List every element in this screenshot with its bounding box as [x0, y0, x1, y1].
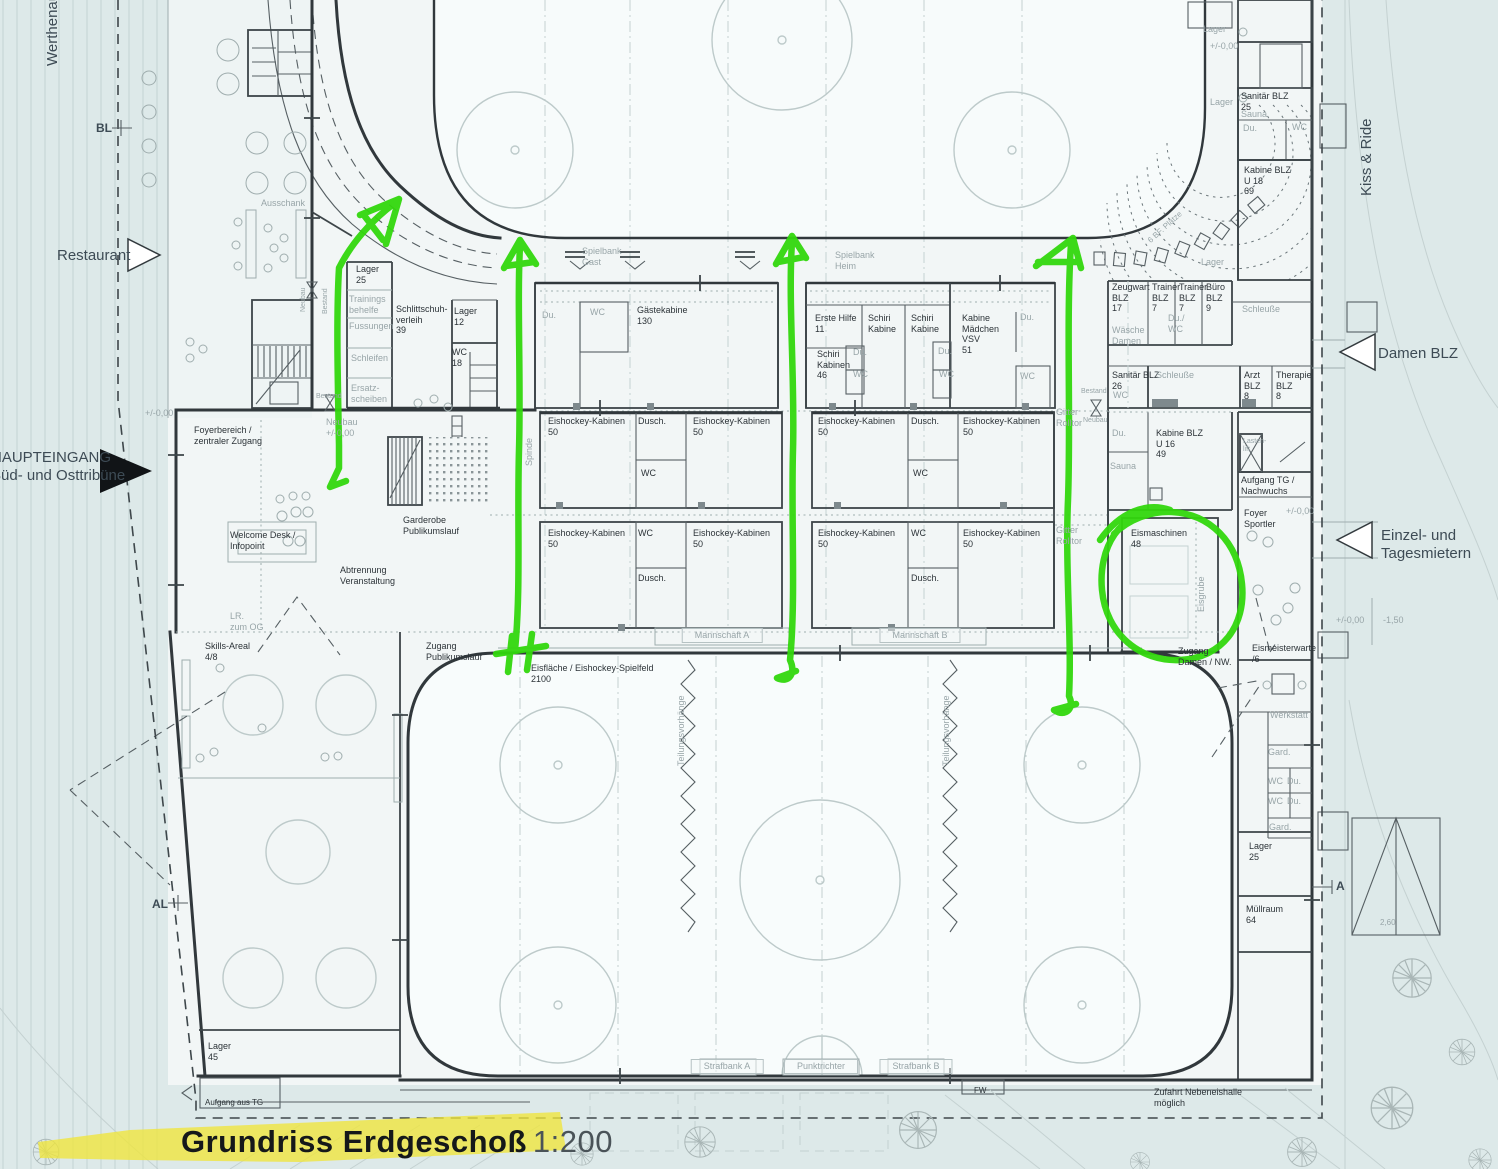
plan-title: Grundriss Erdgeschoß1:200	[181, 1124, 613, 1160]
floor-plan-page: WerthenauKiss & RideRestaurantHAUPTEINGA…	[0, 0, 1498, 1169]
plan-title-scale: 1:200	[533, 1124, 613, 1159]
plan-title-main: Grundriss Erdgeschoß	[181, 1124, 527, 1159]
floor-plan-drawing	[0, 0, 1498, 1169]
main-ice-rink	[408, 628, 1232, 1076]
einzel-arrow-icon	[1337, 522, 1372, 558]
